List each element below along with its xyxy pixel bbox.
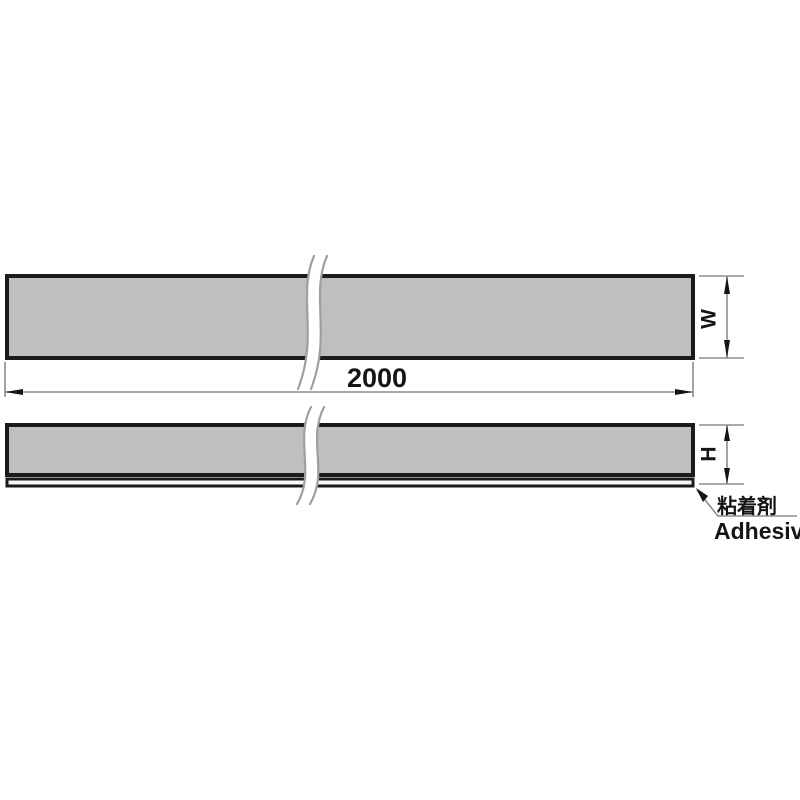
- width-dimension: W: [698, 276, 745, 358]
- adhesive-layer: [7, 479, 693, 486]
- dimension-arrow-left: [5, 389, 23, 395]
- dimension-arrow-down: [724, 468, 730, 484]
- technical-drawing-canvas: 2000 W H: [0, 0, 800, 800]
- dimension-arrow-up: [724, 425, 730, 441]
- strip-body-top-view: [7, 276, 693, 358]
- side-strip-view: [7, 407, 693, 504]
- leader-arrow: [696, 488, 708, 502]
- dimension-arrow-up: [724, 276, 730, 294]
- strip-product-drawing: 2000 W H: [0, 0, 800, 800]
- height-dimension: H: [698, 425, 745, 484]
- dimension-arrow-down: [724, 340, 730, 358]
- length-dimension-label: 2000: [347, 363, 407, 393]
- length-dimension: 2000: [5, 362, 693, 397]
- adhesive-callout: 粘着剤 Adhesive: [696, 488, 800, 544]
- adhesive-label-english: Adhesive: [714, 518, 800, 544]
- dimension-arrow-right: [675, 389, 693, 395]
- strip-body-side-view: [7, 425, 693, 475]
- adhesive-label-japanese: 粘着剤: [717, 494, 777, 518]
- height-dimension-label: H: [698, 446, 721, 461]
- width-dimension-label: W: [698, 309, 721, 329]
